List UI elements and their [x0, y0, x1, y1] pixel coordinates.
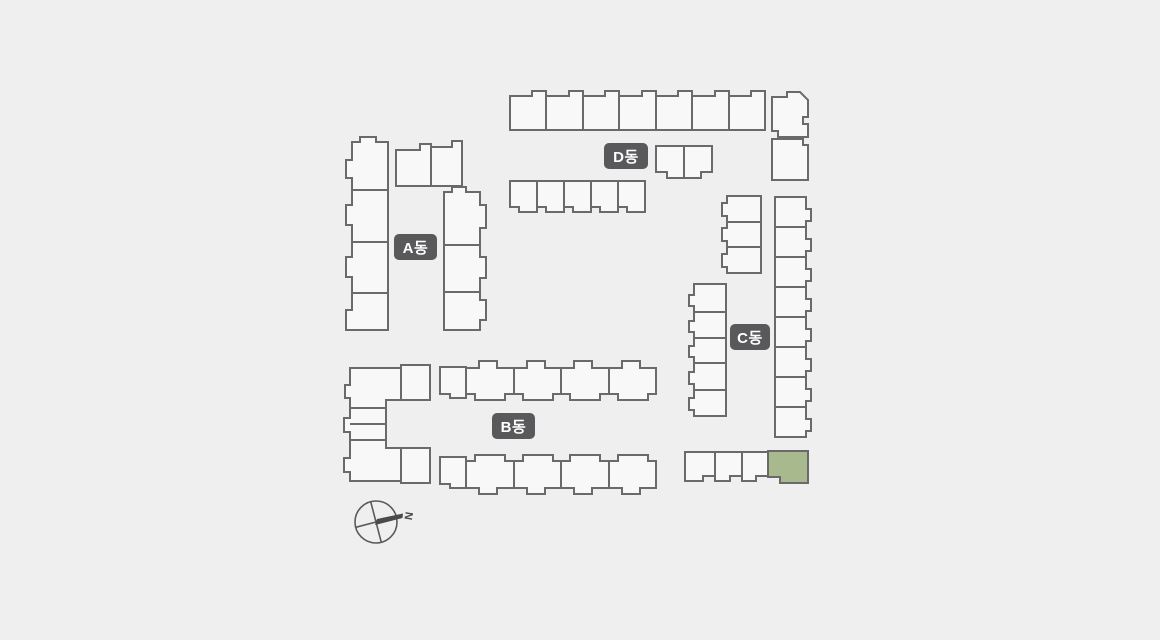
building-D-unit-9[interactable]: [772, 139, 808, 180]
building-D-unit-13[interactable]: [537, 181, 564, 212]
building-A-unit-3[interactable]: [346, 242, 388, 293]
compass-needle-icon: [375, 514, 403, 526]
compass: N: [355, 501, 415, 543]
buildings-layer: [344, 91, 811, 494]
building-C-unit-18[interactable]: [715, 452, 742, 481]
building-D-unit-16[interactable]: [618, 181, 645, 212]
site-plan-svg: N: [0, 0, 1160, 640]
building-A-unit-1[interactable]: [346, 137, 388, 190]
building-B-unit-13[interactable]: [466, 455, 514, 494]
building-D-unit-6[interactable]: [692, 91, 729, 130]
building-B-unit-15[interactable]: [561, 455, 609, 494]
building-D-unit-5[interactable]: [656, 91, 692, 130]
building-C-unit-5[interactable]: [689, 312, 726, 338]
building-C-unit-6[interactable]: [689, 338, 726, 363]
building-A-unit-6[interactable]: [431, 141, 462, 186]
building-A-unit-9[interactable]: [444, 292, 486, 330]
building-C-unit-14[interactable]: [775, 347, 811, 377]
building-C-unit-15[interactable]: [775, 377, 811, 407]
building-A-unit-5[interactable]: [396, 144, 431, 186]
building-C-unit-10[interactable]: [775, 227, 811, 257]
building-A-unit-8[interactable]: [444, 245, 486, 292]
building-D-unit-2[interactable]: [546, 91, 583, 130]
building-B-unit-7[interactable]: [440, 367, 466, 398]
building-C-unit-8[interactable]: [689, 390, 726, 416]
building-C-unit-13[interactable]: [775, 317, 811, 347]
building-B-unit-14[interactable]: [514, 455, 561, 494]
building-D-unit-10[interactable]: [656, 146, 684, 178]
building-C-unit-1[interactable]: [722, 196, 761, 222]
building-C-unit-16[interactable]: [775, 407, 811, 437]
building-D-unit-11[interactable]: [684, 146, 712, 178]
building-label-c: C동: [730, 324, 770, 350]
building-B-unit-1[interactable]: [345, 368, 401, 408]
building-B-unit-5[interactable]: [344, 440, 401, 481]
building-C-unit-2[interactable]: [722, 222, 761, 247]
building-label-d: D동: [604, 143, 648, 169]
building-B-unit-9[interactable]: [514, 361, 561, 400]
building-D-unit-15[interactable]: [591, 181, 618, 212]
building-C-unit-12[interactable]: [775, 287, 811, 317]
building-C-unit-19[interactable]: [742, 452, 768, 481]
building-B-unit-8[interactable]: [466, 361, 514, 400]
building-D-unit-14[interactable]: [564, 181, 591, 212]
building-C-unit-9[interactable]: [775, 197, 811, 227]
building-B-unit-10[interactable]: [561, 361, 609, 400]
building-label-a: A동: [394, 234, 437, 260]
building-A-unit-4[interactable]: [346, 293, 388, 330]
building-B-unit-16[interactable]: [609, 455, 656, 494]
compass-north-label: N: [401, 511, 414, 521]
building-C-unit-7[interactable]: [689, 363, 726, 390]
building-A-unit-7[interactable]: [444, 187, 486, 245]
building-A-unit-2[interactable]: [346, 190, 388, 242]
building-B-unit-11[interactable]: [609, 361, 656, 400]
building-D-unit-12[interactable]: [510, 181, 537, 212]
building-D-unit-3[interactable]: [583, 91, 619, 130]
building-D-unit-7[interactable]: [729, 91, 765, 130]
building-B-unit-12[interactable]: [440, 457, 466, 488]
building-D-unit-4[interactable]: [619, 91, 656, 130]
building-C-unit-17[interactable]: [685, 452, 715, 481]
building-D: [510, 91, 808, 212]
building-D-unit-1[interactable]: [510, 91, 546, 130]
building-B-unit-2[interactable]: [401, 365, 430, 400]
building-C-selected-unit[interactable]: [768, 451, 808, 483]
building-C-unit-3[interactable]: [722, 247, 761, 273]
building-C-unit-4[interactable]: [689, 284, 726, 312]
site-plan: N A동 B동 C동 D동: [0, 0, 1160, 640]
building-C-unit-11[interactable]: [775, 257, 811, 287]
building-D-unit-8[interactable]: [772, 92, 808, 137]
building-label-b: B동: [492, 413, 535, 439]
building-B-unit-6[interactable]: [401, 448, 430, 483]
